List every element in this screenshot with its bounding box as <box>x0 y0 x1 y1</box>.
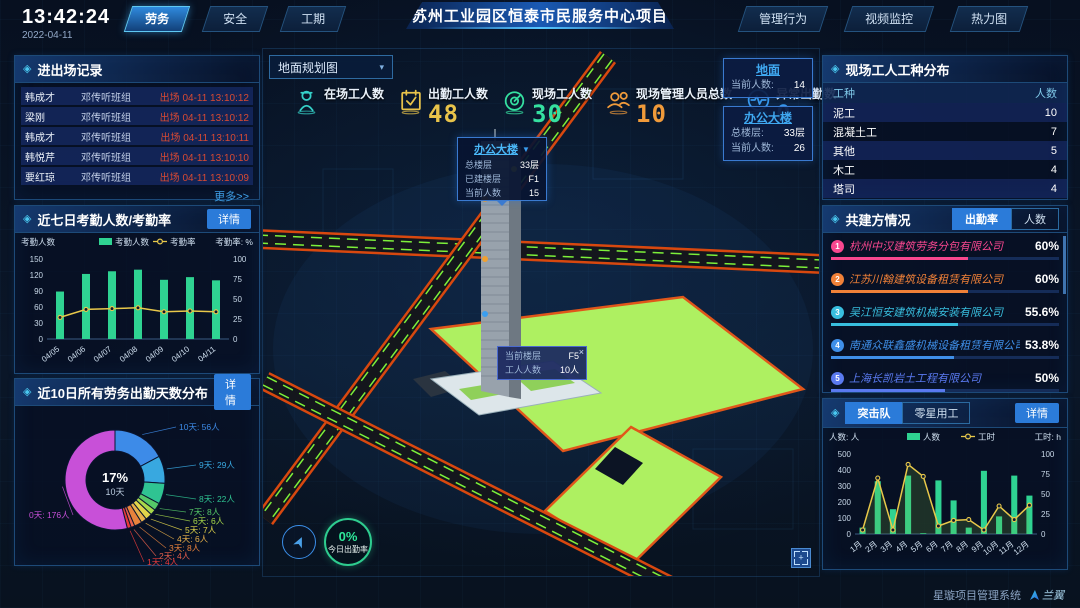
svg-text:04/05: 04/05 <box>40 344 62 364</box>
system-name: 星璇项目管理系统 <box>933 587 1021 603</box>
partner-item[interactable]: 4南通众联鑫盛机械设备租赁有限公司53.8% <box>831 337 1059 367</box>
assault-tabs: 突击队零星用工 <box>845 402 970 424</box>
stat-item: 现场管理人员总数10 <box>605 85 732 127</box>
worker-types-header: 工种 人数 <box>823 83 1067 103</box>
svg-text:04/07: 04/07 <box>92 344 114 364</box>
assault-detail-button[interactable]: 详情 <box>1015 403 1059 423</box>
banner-glow <box>427 27 652 29</box>
svg-text:考勤人数: 考勤人数 <box>21 237 56 247</box>
svg-text:工时: 工时 <box>978 432 996 442</box>
info-row: 已建楼层F1 <box>458 172 546 186</box>
scrollbar[interactable] <box>1063 236 1066 294</box>
partner-pct: 60% <box>1035 239 1059 253</box>
entry-exit-title: 进出场记录 <box>37 60 102 79</box>
caret-down-icon[interactable]: ▼ <box>522 145 530 154</box>
distribution-detail-button[interactable]: 详情 <box>214 374 251 410</box>
gauge-icon <box>501 85 528 115</box>
worker-types-title: 现场工人工种分布 <box>845 60 949 79</box>
worker-type-row: 泥工10 <box>823 103 1067 122</box>
date-display: 2022-04-11 <box>22 30 110 41</box>
worker-type-row: 木工4 <box>823 160 1067 179</box>
svg-text:90: 90 <box>34 287 43 296</box>
partner-pct: 55.6% <box>1025 305 1059 319</box>
dashboard: 13:42:24 2022-04-11 劳务安全工期 苏州工业园区恒泰市民服务中… <box>0 0 1080 608</box>
caret-down-icon: ▾ <box>379 62 384 73</box>
svg-text:25: 25 <box>1041 510 1050 519</box>
partner-pct: 50% <box>1035 371 1059 385</box>
diamond-icon: ◈ <box>23 214 31 225</box>
nav-tab[interactable]: 工期 <box>280 6 346 32</box>
rank-badge: 3 <box>831 306 844 319</box>
svg-text:8天: 22人: 8天: 22人 <box>199 494 235 504</box>
svg-text:10天: 10天 <box>105 487 124 497</box>
svg-text:100: 100 <box>1041 450 1055 459</box>
assault-monthly-chart: 人数: 人工时: h人数工时01002003004005000255075100… <box>823 428 1067 566</box>
diamond-icon: ◈ <box>831 408 839 419</box>
zone-info-boxes: 地面当前人数:14办公大楼总楼层:33层当前人数:26 <box>723 58 813 161</box>
rank-badge: 1 <box>831 240 844 253</box>
svg-text:人数: 人数 <box>923 432 941 442</box>
nav-tab[interactable]: 视频监控 <box>844 6 934 32</box>
svg-text:0: 0 <box>233 335 238 344</box>
svg-text:50: 50 <box>233 295 242 304</box>
stat-item: 出勤工人数48 <box>397 85 488 127</box>
partner-item[interactable]: 3吴江恒安建筑机械安装有限公司55.6% <box>831 304 1059 334</box>
svg-text:17%: 17% <box>102 470 128 485</box>
partner-item[interactable]: 1杭州中汉建筑劳务分包有限公司60% <box>831 238 1059 268</box>
logo-text: 兰翼 <box>1042 587 1064 603</box>
svg-text:200: 200 <box>838 498 852 507</box>
diamond-icon: ◈ <box>23 387 31 398</box>
distribution-panel: ◈ 近10日所有劳务出勤天数分布 详情 10天: 56人9天: 29人8天: 2… <box>14 378 260 566</box>
info-row: 当前人数:26 <box>724 141 812 156</box>
svg-text:考勤率: 考勤率 <box>170 237 196 247</box>
info-row: 总楼层:33层 <box>724 126 812 141</box>
svg-text:300: 300 <box>838 482 852 491</box>
rank-badge: 4 <box>831 339 844 352</box>
plus-icon: + <box>798 553 803 563</box>
entry-exit-row[interactable]: 韩成才邓传听班组出场 04-11 13:10:11 <box>21 127 253 145</box>
footer: 星璇项目管理系统 兰翼 <box>933 587 1064 603</box>
partner-item[interactable]: 2江苏川翰建筑设备租赁有限公司60% <box>831 271 1059 301</box>
nav-tab[interactable]: 劳务 <box>124 6 190 32</box>
svg-text:1月: 1月 <box>848 539 863 554</box>
svg-text:8月: 8月 <box>955 539 970 554</box>
compass-button[interactable]: ➤ <box>282 525 316 559</box>
svg-text:0: 0 <box>847 530 852 539</box>
building-popup[interactable]: 办公大楼 ▼ 总楼层33层已建楼层F1当前人数15 <box>457 137 547 201</box>
partner-item[interactable]: 5上海长凯岩土工程有限公司50% <box>831 370 1059 393</box>
entry-exit-list: 韩成才邓传听班组出场 04-11 13:10:12梁刚邓传听班组出场 04-11… <box>15 83 259 185</box>
partner-pct: 60% <box>1035 272 1059 286</box>
stat-value: 30 <box>532 102 592 127</box>
svg-text:人数: 人: 人数: 人 <box>829 432 860 442</box>
assault-panel: ◈ 突击队零星用工 详情 人数: 人工时: h人数工时0100200300400… <box>822 398 1068 570</box>
svg-text:04/10: 04/10 <box>170 344 192 364</box>
worker-types-list: 泥工10混凝土工7其他5木工4塔司4 <box>823 103 1067 198</box>
col-count: 人数 <box>1017 85 1057 101</box>
svg-text:工时: h: 工时: h <box>1035 432 1062 442</box>
nav-tab[interactable]: 热力图 <box>950 6 1028 32</box>
stat-item: 在场工人数 <box>293 85 384 115</box>
svg-text:4月: 4月 <box>894 539 909 554</box>
partner-name: 上海长凯岩土工程有限公司 <box>849 370 1030 386</box>
brand-logo: 兰翼 <box>1030 587 1064 603</box>
rank-badge: 2 <box>831 273 844 286</box>
stat-label: 在场工人数 <box>324 85 384 102</box>
nav-tab[interactable]: 管理行为 <box>738 6 828 32</box>
nav-tab[interactable]: 安全 <box>202 6 268 32</box>
attendance-days-donut-chart: 10天: 56人9天: 29人8天: 22人7天: 8人6天: 6人5天: 7人… <box>15 406 259 566</box>
stat-item: 现场工人数30 <box>501 85 592 127</box>
svg-text:0: 0 <box>39 335 44 344</box>
entry-exit-row[interactable]: 梁刚邓传听班组出场 04-11 13:10:12 <box>21 107 253 125</box>
worker-type-row: 其他5 <box>823 141 1067 160</box>
time-display: 13:42:24 <box>22 6 110 29</box>
weekly-detail-button[interactable]: 详情 <box>207 209 251 229</box>
svg-text:75: 75 <box>1041 470 1050 479</box>
weekly-attendance-chart: 考勤人数考勤率: %考勤人数考勤率03060901201500255075100… <box>15 233 259 371</box>
attendance-gauge: 0% 今日出勤率 <box>324 518 372 566</box>
svg-text:考勤率: %: 考勤率: % <box>215 237 253 247</box>
svg-text:100: 100 <box>838 514 852 523</box>
left-nav-tabs: 劳务安全工期 <box>128 6 342 32</box>
svg-text:50: 50 <box>1041 490 1050 499</box>
site-3d-map[interactable]: 地面规划图 ▾ 在场工人数出勤工人数48现场工人数30现场管理人员总数10异常出… <box>262 48 820 577</box>
zone-info-box[interactable]: 办公大楼总楼层:33层当前人数:26 <box>723 106 813 161</box>
gauge-value: 0% <box>339 530 358 543</box>
svg-text:100: 100 <box>233 255 247 264</box>
info-row: 总楼层33层 <box>458 158 546 172</box>
worker-icon <box>293 85 320 115</box>
more-link[interactable]: 更多>> <box>15 187 259 205</box>
logo-icon <box>1030 590 1039 600</box>
entry-exit-row[interactable]: 要红琼邓传听班组出场 04-11 13:10:09 <box>21 167 253 185</box>
stat-value: 48 <box>428 102 488 127</box>
partners-tab[interactable]: 人数 <box>1011 208 1059 230</box>
partners-list: 1杭州中汉建筑劳务分包有限公司60%2江苏川翰建筑设备租赁有限公司60%3吴江恒… <box>823 233 1067 393</box>
info-row: 当前楼层F5 <box>504 349 580 363</box>
info-row: 当前人数15 <box>458 186 546 200</box>
svg-text:04/08: 04/08 <box>118 344 140 364</box>
partner-name: 南通众联鑫盛机械设备租赁有限公司 <box>849 337 1020 353</box>
svg-text:5月: 5月 <box>909 539 924 554</box>
stat-value: 10 <box>636 102 732 127</box>
partners-tabs: 出勤率人数 <box>952 208 1059 230</box>
svg-text:0: 0 <box>1041 530 1046 539</box>
entry-exit-panel: ◈ 进出场记录 韩成才邓传听班组出场 04-11 13:10:12梁刚邓传听班组… <box>14 55 260 200</box>
info-row: 工人人数10人 <box>504 363 580 377</box>
entry-exit-row[interactable]: 韩悦芹邓传听班组出场 04-11 13:10:10 <box>21 147 253 165</box>
building-popup-title[interactable]: 办公大楼 <box>474 141 518 157</box>
partners-tab[interactable]: 出勤率 <box>952 208 1011 230</box>
svg-text:考勤人数: 考勤人数 <box>115 237 150 247</box>
people-icon <box>605 85 632 115</box>
svg-text:9天: 29人: 9天: 29人 <box>199 460 235 470</box>
weekly-title: 近七日考勤人数/考勤率 <box>37 210 171 229</box>
right-nav-tabs: 管理行为视频监控热力图 <box>742 6 1024 32</box>
svg-text:30: 30 <box>34 319 43 328</box>
col-type: 工种 <box>833 85 1017 101</box>
rank-badge: 5 <box>831 372 844 385</box>
partner-name: 吴江恒安建筑机械安装有限公司 <box>849 304 1020 320</box>
diamond-icon: ◈ <box>831 64 839 75</box>
zone-title[interactable]: 地面 <box>724 61 812 78</box>
title-banner: 苏州工业园区恒泰市民服务中心项目 <box>406 2 674 29</box>
zone-title[interactable]: 办公大楼 <box>724 109 812 126</box>
distribution-title: 近10日所有劳务出勤天数分布 <box>37 383 207 402</box>
svg-text:04/06: 04/06 <box>66 344 88 364</box>
svg-text:12月: 12月 <box>1012 539 1031 557</box>
svg-text:7月: 7月 <box>939 539 954 554</box>
diamond-icon: ◈ <box>23 64 31 75</box>
svg-text:500: 500 <box>838 450 852 459</box>
svg-text:2月: 2月 <box>864 539 879 554</box>
partner-pct: 53.8% <box>1025 338 1059 352</box>
svg-text:04/11: 04/11 <box>196 344 217 363</box>
close-icon[interactable]: × <box>579 347 584 357</box>
map-layer-dropdown[interactable]: 地面规划图 ▾ <box>269 55 393 79</box>
clock: 13:42:24 2022-04-11 <box>22 6 110 41</box>
svg-text:3月: 3月 <box>879 539 894 554</box>
worker-type-row: 混凝土工7 <box>823 122 1067 141</box>
entry-exit-row[interactable]: 韩成才邓传听班组出场 04-11 13:10:12 <box>21 87 253 105</box>
partner-name: 江苏川翰建筑设备租赁有限公司 <box>849 271 1030 287</box>
diamond-icon: ◈ <box>831 214 839 225</box>
info-row: 当前人数:14 <box>724 78 812 93</box>
worker-type-row: 塔司4 <box>823 179 1067 198</box>
svg-text:400: 400 <box>838 466 852 475</box>
partner-name: 杭州中汉建筑劳务分包有限公司 <box>849 238 1030 254</box>
compass-needle-icon: ➤ <box>288 532 310 551</box>
assault-tab[interactable]: 突击队 <box>845 402 902 424</box>
weekly-attendance-panel: ◈ 近七日考勤人数/考勤率 详情 考勤人数考勤率: %考勤人数考勤率030609… <box>14 205 260 374</box>
calendar-icon <box>397 85 424 115</box>
svg-text:120: 120 <box>30 271 44 280</box>
map-layer-label: 地面规划图 <box>278 59 338 76</box>
svg-text:6月: 6月 <box>924 539 939 554</box>
page-title: 苏州工业园区恒泰市民服务中心项目 <box>412 5 668 26</box>
svg-text:0天: 176人: 0天: 176人 <box>29 510 70 520</box>
svg-text:75: 75 <box>233 275 242 284</box>
zone-info-box[interactable]: 地面当前人数:14 <box>723 58 813 98</box>
gauge-label: 今日出勤率 <box>328 544 368 555</box>
fullscreen-button[interactable]: + <box>791 548 811 568</box>
svg-text:150: 150 <box>30 255 44 264</box>
partners-title: 共建方情况 <box>845 210 910 229</box>
floor-tooltip: × 当前楼层F5工人人数10人 <box>497 346 587 380</box>
svg-text:1天: 4人: 1天: 4人 <box>147 557 179 566</box>
svg-text:10天: 56人: 10天: 56人 <box>179 422 220 432</box>
partners-panel: ◈ 共建方情况 出勤率人数 1杭州中汉建筑劳务分包有限公司60%2江苏川翰建筑设… <box>822 205 1068 393</box>
svg-text:25: 25 <box>233 315 242 324</box>
svg-text:04/09: 04/09 <box>144 344 166 364</box>
worker-types-panel: ◈ 现场工人工种分布 工种 人数 泥工10混凝土工7其他5木工4塔司4 <box>822 55 1068 200</box>
assault-tab[interactable]: 零星用工 <box>902 402 970 424</box>
svg-text:60: 60 <box>34 303 43 312</box>
